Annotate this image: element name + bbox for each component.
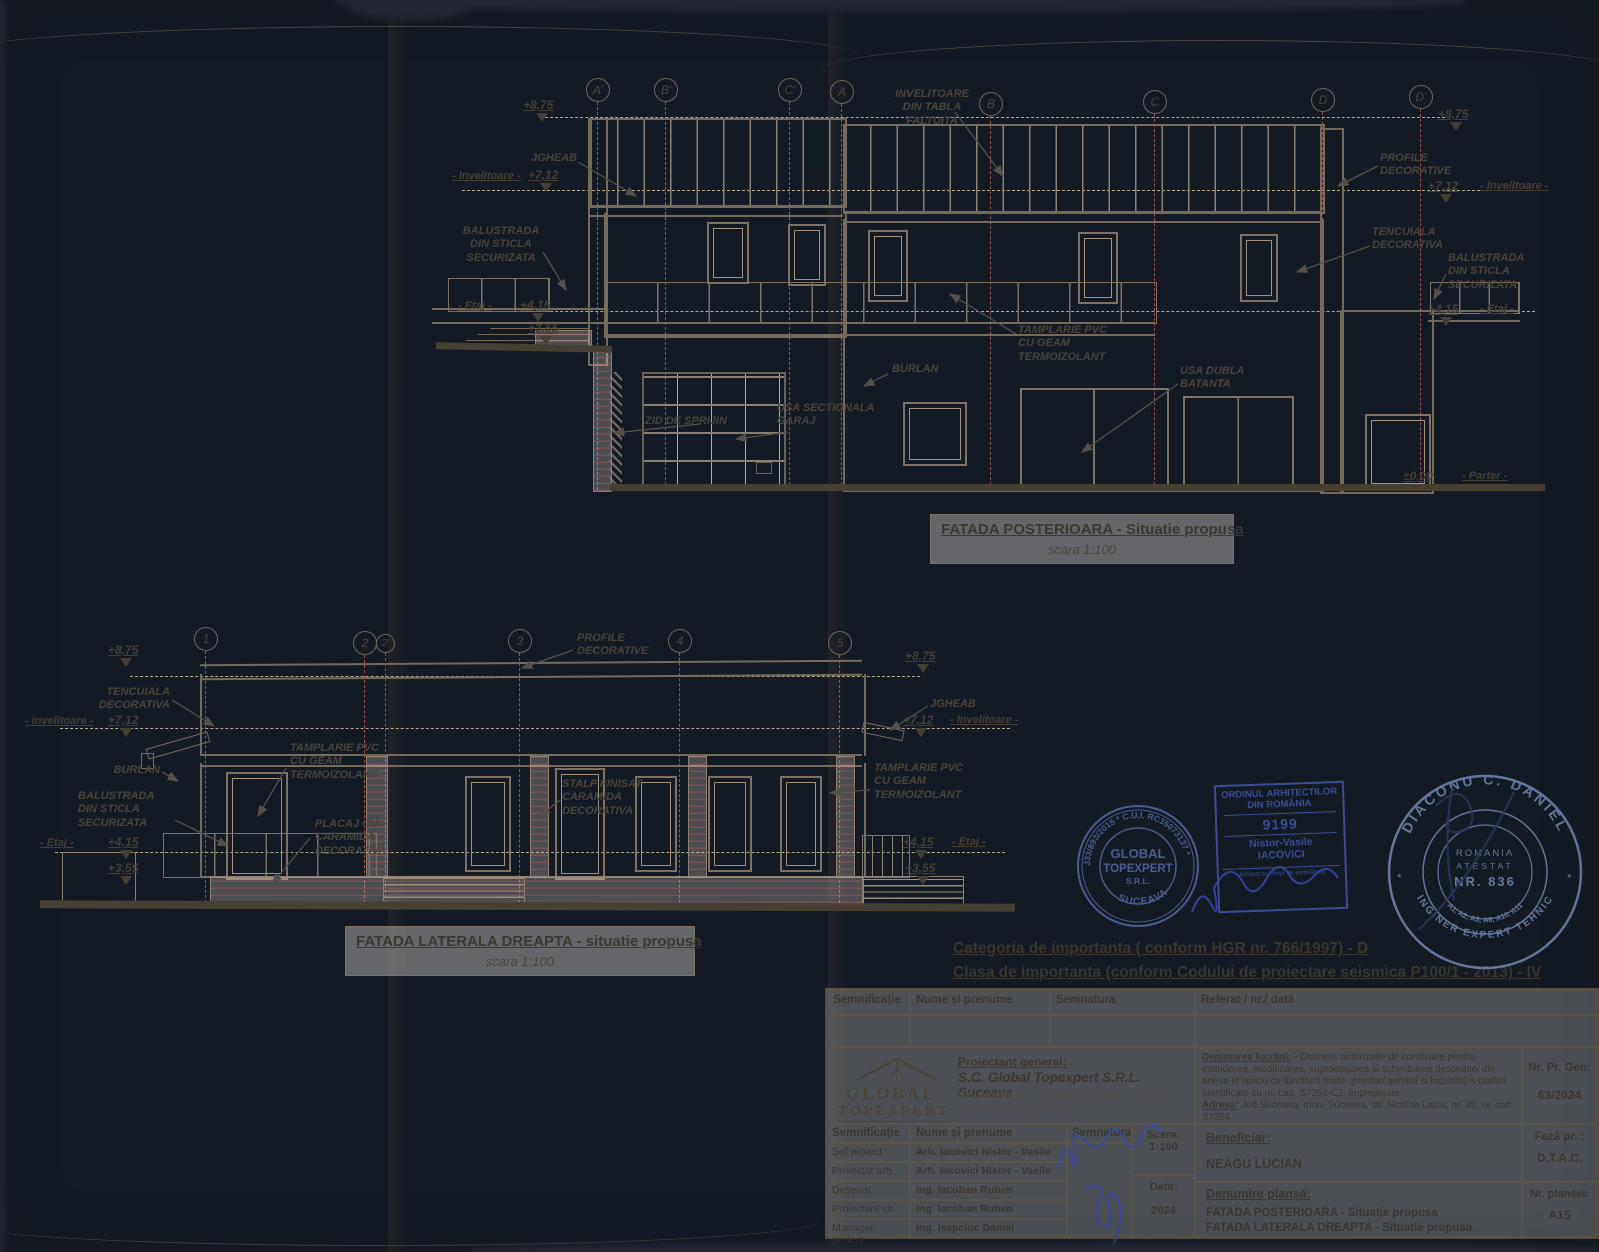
roof-band (590, 118, 847, 208)
tb-nrpr-value: 63/2024 (1523, 1088, 1596, 1102)
level-value: +8,75 (905, 649, 935, 663)
axis-label: 2 (362, 636, 369, 650)
stamp-city: SUCEAVA (1116, 887, 1170, 908)
tb-nrpr-label: Nr. Pr. Gen: (1523, 1062, 1596, 1074)
tb-lower-header-nume: Nume și prenume (911, 1125, 1066, 1141)
tb-plansa-line1: FATADA POSTERIOARA - Situatie propusa (1206, 1207, 1438, 1219)
tb-scara-label: Scara: (1133, 1129, 1194, 1141)
annotation-tencuiala: TENCUIALA DECORATIVA (62, 686, 170, 713)
axis-label: B' (661, 83, 671, 97)
tb-empty-cell (1195, 1015, 1597, 1047)
double-door (1183, 396, 1294, 490)
tb-denumire-cell: Denumirea lucrării: - Obtinere autorizat… (1195, 1047, 1522, 1124)
tb-header-nume: Nume și prenume (911, 991, 1049, 1009)
annotation-balustrada: BALUSTRADA DIN STICLA SECURIZATA (455, 225, 547, 265)
tb-empty-cell (910, 1015, 1050, 1047)
tb-data-value: 2024 (1133, 1205, 1194, 1217)
axis-label: 4 (677, 634, 684, 648)
window (1240, 234, 1278, 302)
fold-crease (388, 0, 418, 1252)
tb-adresa-text: Jud.Suceava, mun. Suceava, str. Nicolae … (1202, 1100, 1514, 1123)
tb-nrplansei-value: A15 (1523, 1208, 1596, 1222)
tb-row-name: Arh. Iacovici Nistor - Vasile (910, 1162, 1067, 1181)
tb-lower-header-semnatura: Semnatura (1068, 1125, 1131, 1141)
axis-label: 5 (837, 636, 844, 650)
level-value: +8,75 (523, 98, 553, 112)
brick-plinth (210, 876, 864, 904)
level-value: +4,15 (520, 298, 550, 312)
window (465, 776, 511, 872)
tb-header-semnatura: Semnatura (1051, 991, 1194, 1009)
tb-plansa-line2: FATADA LATERALA DREAPTA - Situatie propu… (1206, 1222, 1472, 1234)
tb-lower-header-semnificatie: Semnificație (828, 1125, 909, 1141)
tb-beneficiar-name: NEAGU LUCIAN (1206, 1157, 1302, 1171)
tb-empty-cell (1050, 1015, 1195, 1047)
level-marker (915, 728, 927, 737)
company-round-stamp: J33/893/2015 * C.U.I. RC35073137 * SUCEA… (1070, 798, 1206, 934)
axis-bubble: C' (778, 78, 802, 102)
annotation-jgheab: JGHEAB (930, 698, 990, 711)
annotation-burlan: BURLAN (100, 764, 160, 777)
svg-text:DIACONU C. DANIEL: DIACONU C. DANIEL (1398, 771, 1571, 835)
stamp-company-name: GLOBAL (1111, 846, 1166, 861)
stamp-country: ROMANIA (1456, 848, 1514, 859)
level-value: +8,75 (1438, 107, 1468, 121)
axis-label: 2' (382, 638, 389, 649)
stamp-company-suffix: S.R.L. (1126, 876, 1150, 886)
stamp-cert: ATESTAT (1456, 861, 1513, 871)
annotation-placaj: PLACAJ CU CARAMIDA DECORATIVA (315, 818, 407, 858)
photo-background-left (0, 0, 5, 1252)
svg-text:SUCEAVA: SUCEAVA (1116, 887, 1170, 908)
level-value: +4,15 (903, 835, 933, 849)
brick-pier (836, 756, 855, 878)
axis-bubble: 1 (194, 627, 218, 651)
level-marker (120, 876, 132, 885)
terrain-hatch (610, 372, 622, 488)
axis-label: A' (593, 83, 603, 97)
drawing-title-box: FATADA POSTERIOARA - Situatie propusa sc… (930, 514, 1234, 564)
logo-text-global: GLOBAL (846, 1084, 937, 1104)
drawing-title: FATADA POSTERIOARA - Situatie propusa (941, 521, 1223, 538)
tb-empty-cell (827, 1015, 910, 1047)
logo-roof-icon (854, 1053, 940, 1083)
level-marker (120, 658, 132, 667)
tb-proiectant-addr: Jud. Suceava, loc. Sfantu Ilie, Str. Vic… (958, 1090, 1161, 1100)
logo-text-topexpert: TOPEXPERT (838, 1104, 950, 1122)
tb-row-role: Proiectant str. (827, 1200, 910, 1219)
axis-label: 1 (203, 632, 210, 646)
tb-denumire-label: Denumirea lucrării: (1202, 1052, 1291, 1063)
level-marker (120, 728, 132, 737)
axis-bubble: 4 (668, 629, 692, 653)
annotation-balustrada-dreapta: BALUSTRADA DIN STICLA SECURIZATA (1448, 252, 1544, 292)
tb-proiectant-label: Proiectant general: (958, 1055, 1067, 1069)
window (780, 776, 822, 872)
double-door (1020, 388, 1169, 490)
drawing-title: FATADA LATERALA DREAPTA - situatie propu… (356, 933, 684, 950)
annotation-usa-sectionala: USA SECTIONALA GARAJ (777, 402, 889, 429)
tb-nrpr-cell: Nr. Pr. Gen: 63/2024 (1522, 1047, 1597, 1124)
level-value: +3,55 (528, 321, 558, 335)
axis-bubble: B' (654, 78, 678, 102)
title-block: Semnificație Nume și prenume Semnatura R… (825, 988, 1599, 1239)
tb-proiectant-cell: GLOBAL TOPEXPERT Proiectant general: S.C… (827, 1047, 1195, 1124)
level-marker (915, 850, 927, 859)
window (788, 224, 826, 286)
stamp-domains: A1, A2, A3, A8, A10, A11 (1446, 901, 1525, 925)
tb-beneficiar-label: Beneficiar: (1206, 1131, 1271, 1145)
photo-background-bottom (470, 1242, 1599, 1252)
level-label: - Etaj - (952, 836, 986, 848)
axis-bubble: 2' (376, 634, 395, 653)
annotation-burlan: BURLAN (892, 363, 952, 376)
stamp-company-name: TOPEXPERT (1103, 863, 1172, 875)
stamp-expert-name: DIACONU C. DANIEL (1398, 771, 1571, 835)
expert-round-stamp: DIACONU C. DANIEL INGINER EXPERT TEHNIC … (1383, 770, 1588, 975)
level-label: - Invelitoare - (25, 715, 93, 727)
tb-faza-value: D.T.A.C. (1523, 1151, 1596, 1165)
tb-header-semnificatie: Semnificație (828, 991, 909, 1009)
annotation-tamplarie: TAMPLARIE PVC CU GEAM TERMOIZOLANT (1018, 324, 1130, 364)
stamp-number: 9199 (1217, 814, 1343, 834)
stamp-cert-number: NR. 836 (1454, 874, 1516, 889)
axis-bubble: D' (1409, 85, 1433, 109)
tb-header-referat: Referat / nr./ dată (1196, 991, 1596, 1009)
brick-pier (530, 756, 549, 878)
axis-bubble: A' (586, 78, 610, 102)
level-value: +7,12 (1428, 179, 1458, 193)
tb-plansa-cell: Denumire planșă: FATADA POSTERIOARA - Si… (1195, 1182, 1522, 1237)
axis-label: C (1151, 95, 1160, 109)
stamp-architect-name: Nistor-VasileIACOVICI (1218, 835, 1345, 865)
tb-nrplansei-label: Nr. planșei: (1523, 1188, 1596, 1200)
annotation-tamplarie-dreapta: TAMPLARIE PVC CU GEAM TERMOIZOLANT (874, 762, 986, 802)
tb-row-role: Proiectat arh. (827, 1162, 910, 1181)
level-value: +7,12 (528, 168, 558, 182)
steps-band (383, 876, 525, 904)
annotation-tencuiala: TENCUIALA DECORATIVA (1372, 226, 1468, 253)
drawing-scale: scara 1:100 (941, 542, 1223, 557)
annotation-profile: PROFILE DECORATIVE (577, 632, 669, 659)
stamp-footer: Arhitect cu drept de semnătură (1223, 865, 1341, 879)
tb-scara-value: 1:100 (1133, 1141, 1194, 1153)
annotation-jgheab: JGHEAB (505, 152, 577, 165)
tb-faza-cell: Fază pr. : D.T.A.C. (1522, 1124, 1597, 1182)
tb-faza-label: Fază pr. : (1523, 1131, 1596, 1143)
steps-band (862, 876, 964, 905)
level-marker (917, 664, 929, 673)
level-label: - Invelitoare - (1480, 180, 1548, 192)
drawing-scale: scara 1:100 (356, 954, 684, 969)
tb-row-name: Ing. Iacoban Ruben (910, 1200, 1067, 1219)
annotation-stalp: STALP FINISAT CARAMIDA DECORATIVA (562, 778, 664, 818)
level-marker (1440, 194, 1452, 203)
level-marker (1422, 484, 1434, 493)
level-marker (540, 183, 552, 192)
annotation-balustrada: BALUSTRADA DIN STICLA SECURIZATA (78, 790, 174, 830)
axis-bubble: A (830, 80, 854, 104)
tb-row-role: Manager proiect (827, 1219, 910, 1237)
level-marker (540, 336, 552, 345)
level-label: - Parter - (1462, 470, 1507, 482)
brick-pier (688, 756, 707, 878)
roof-band (843, 124, 1325, 214)
window (708, 776, 752, 872)
axis-label: D' (1416, 90, 1427, 104)
tb-nrplansei-cell: Nr. planșei: A15 (1522, 1182, 1597, 1237)
axis-bubble: 5 (828, 631, 852, 655)
importance-category-line: Categoria de importanta ( conform HGR nr… (953, 940, 1368, 958)
tb-row-name: Ing. Iacoban Ruben (910, 1181, 1067, 1200)
axis-bubble: 3 (508, 629, 532, 653)
svg-text:A1, A2, A3, A8, A10, A11: A1, A2, A3, A8, A10, A11 (1446, 901, 1525, 925)
level-marker (917, 876, 929, 885)
axis-label: 3 (517, 634, 524, 648)
level-label: - Invelitoare - (452, 170, 520, 182)
stamp-star: * (1397, 871, 1402, 885)
drawing-title-box: FATADA LATERALA DREAPTA - situatie propu… (345, 926, 695, 976)
axis-bubble: D (1311, 88, 1335, 112)
architect-order-stamp: ORDINUL ARHITECTILORDIN ROMÂNIA 9199 Nis… (1214, 781, 1348, 913)
level-value: +3,55 (905, 861, 935, 875)
tb-row-role: Șef proiect (827, 1143, 910, 1162)
level-marker (536, 113, 548, 122)
level-value: +8,75 (108, 643, 138, 657)
stamp-star: * (1567, 871, 1572, 885)
axis-label: A (838, 85, 846, 99)
glass-balustrade (606, 282, 1157, 324)
garage-door-handle (756, 462, 772, 474)
tb-plansa-label: Denumire planșă: (1206, 1187, 1311, 1201)
level-value: +4,15 (1428, 302, 1458, 316)
window (903, 402, 967, 466)
level-value: +4,15 (108, 835, 138, 849)
axis-bubble: C (1143, 90, 1167, 114)
tb-data-cell: Data: 2024 (1132, 1175, 1195, 1237)
level-label: - Etaj - (1480, 303, 1514, 315)
tb-row-name: Ing. Isepciuc Daniel (910, 1219, 1067, 1237)
tb-proiectant-reg: J33/893/2015 CUI: 35073137 (958, 1103, 1076, 1113)
tb-row-role: Desenat (827, 1181, 910, 1200)
scanned-drawing-sheet: A' B' C' A B C D D' (0, 0, 1599, 1252)
tb-adresa-label: Adresa: (1202, 1100, 1238, 1111)
level-label: - Etaj - (40, 837, 74, 849)
axis-label: D (1319, 93, 1328, 107)
level-value: +7,12 (108, 713, 138, 727)
annotation-invelitoare-tabla: INVELITOARE DIN TABLA FALTUITA (874, 88, 990, 128)
level-value: ±0,00 (1403, 469, 1433, 483)
annotation-tamplarie: TAMPLARIE PVC CU GEAM TERMOIZOLANT (290, 742, 402, 782)
level-marker (1440, 317, 1452, 326)
level-marker (120, 850, 132, 859)
annotation-zid-de-sprijin: ZID DE SPRIJIN (645, 415, 735, 428)
level-label: - Etaj - (458, 300, 492, 312)
level-value: +7,12 (903, 713, 933, 727)
axis-label: C' (785, 83, 796, 97)
tb-scara-cell: Scara: 1:100 (1132, 1124, 1195, 1175)
annotation-usa-dubla: USA DUBLA BATANTA (1180, 365, 1272, 392)
tb-row-name: Arh. Iacovici Nistor - Vasile (910, 1143, 1067, 1162)
tb-data-label: Data: (1133, 1181, 1194, 1193)
axis-bubble: 2 (353, 631, 377, 655)
level-marker (1450, 122, 1462, 131)
annotation-profile: PROFILE DECORATIVE (1380, 152, 1472, 179)
level-label: - Invelitoare - (950, 714, 1018, 726)
stamp-org-line: ORDINUL ARHITECTILORDIN ROMÂNIA (1216, 787, 1343, 813)
ground-line (610, 484, 1545, 491)
tb-signature-area (1067, 1143, 1132, 1237)
window (707, 222, 749, 284)
level-value: +3,55 (108, 861, 138, 875)
tb-beneficiar-cell: Beneficiar: NEAGU LUCIAN (1195, 1124, 1522, 1182)
